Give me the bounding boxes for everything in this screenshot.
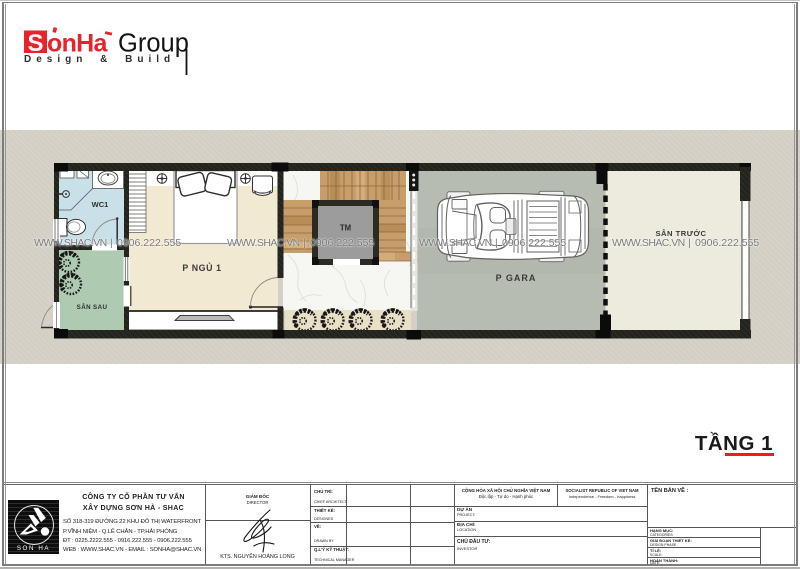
svg-text:SON HA: SON HA xyxy=(17,545,50,552)
svg-text:SÂN SAU: SÂN SAU xyxy=(77,304,108,311)
svg-text:TM: TM xyxy=(340,224,351,233)
svg-text:P NGỦ 1: P NGỦ 1 xyxy=(182,262,221,273)
svg-text:P GARA: P GARA xyxy=(496,273,537,283)
svg-text:WC1: WC1 xyxy=(92,200,109,209)
